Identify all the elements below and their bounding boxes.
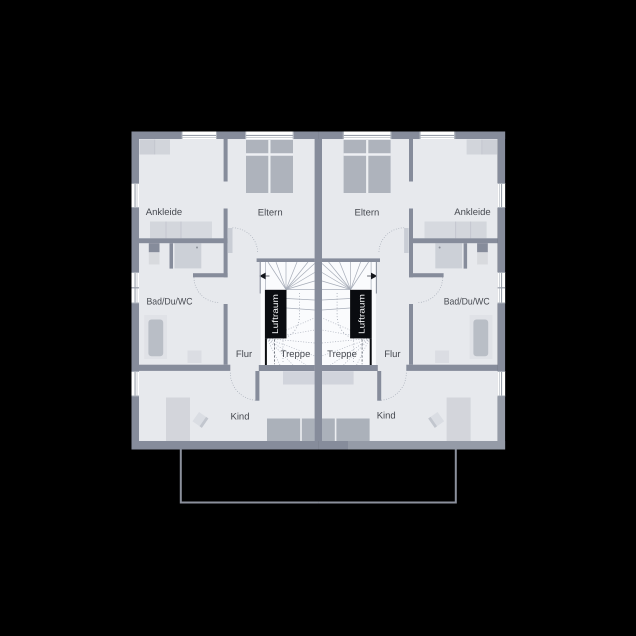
svg-text:Ankleide: Ankleide xyxy=(146,207,182,218)
svg-text:Eltern: Eltern xyxy=(354,207,379,218)
svg-text:Treppe: Treppe xyxy=(281,349,311,360)
svg-text:Bad/Du/WC: Bad/Du/WC xyxy=(147,297,193,308)
svg-text:Kind: Kind xyxy=(377,411,396,422)
svg-text:Luftraum: Luftraum xyxy=(356,294,366,334)
svg-text:Kind: Kind xyxy=(230,412,249,423)
svg-text:Luftraum: Luftraum xyxy=(270,294,280,334)
svg-text:Eltern: Eltern xyxy=(258,207,283,218)
svg-text:Treppe: Treppe xyxy=(327,349,357,360)
svg-text:Ankleide: Ankleide xyxy=(454,207,490,218)
svg-text:Flur: Flur xyxy=(384,349,400,360)
svg-text:Bad/Du/WC: Bad/Du/WC xyxy=(444,297,490,308)
svg-text:Flur: Flur xyxy=(236,349,252,360)
